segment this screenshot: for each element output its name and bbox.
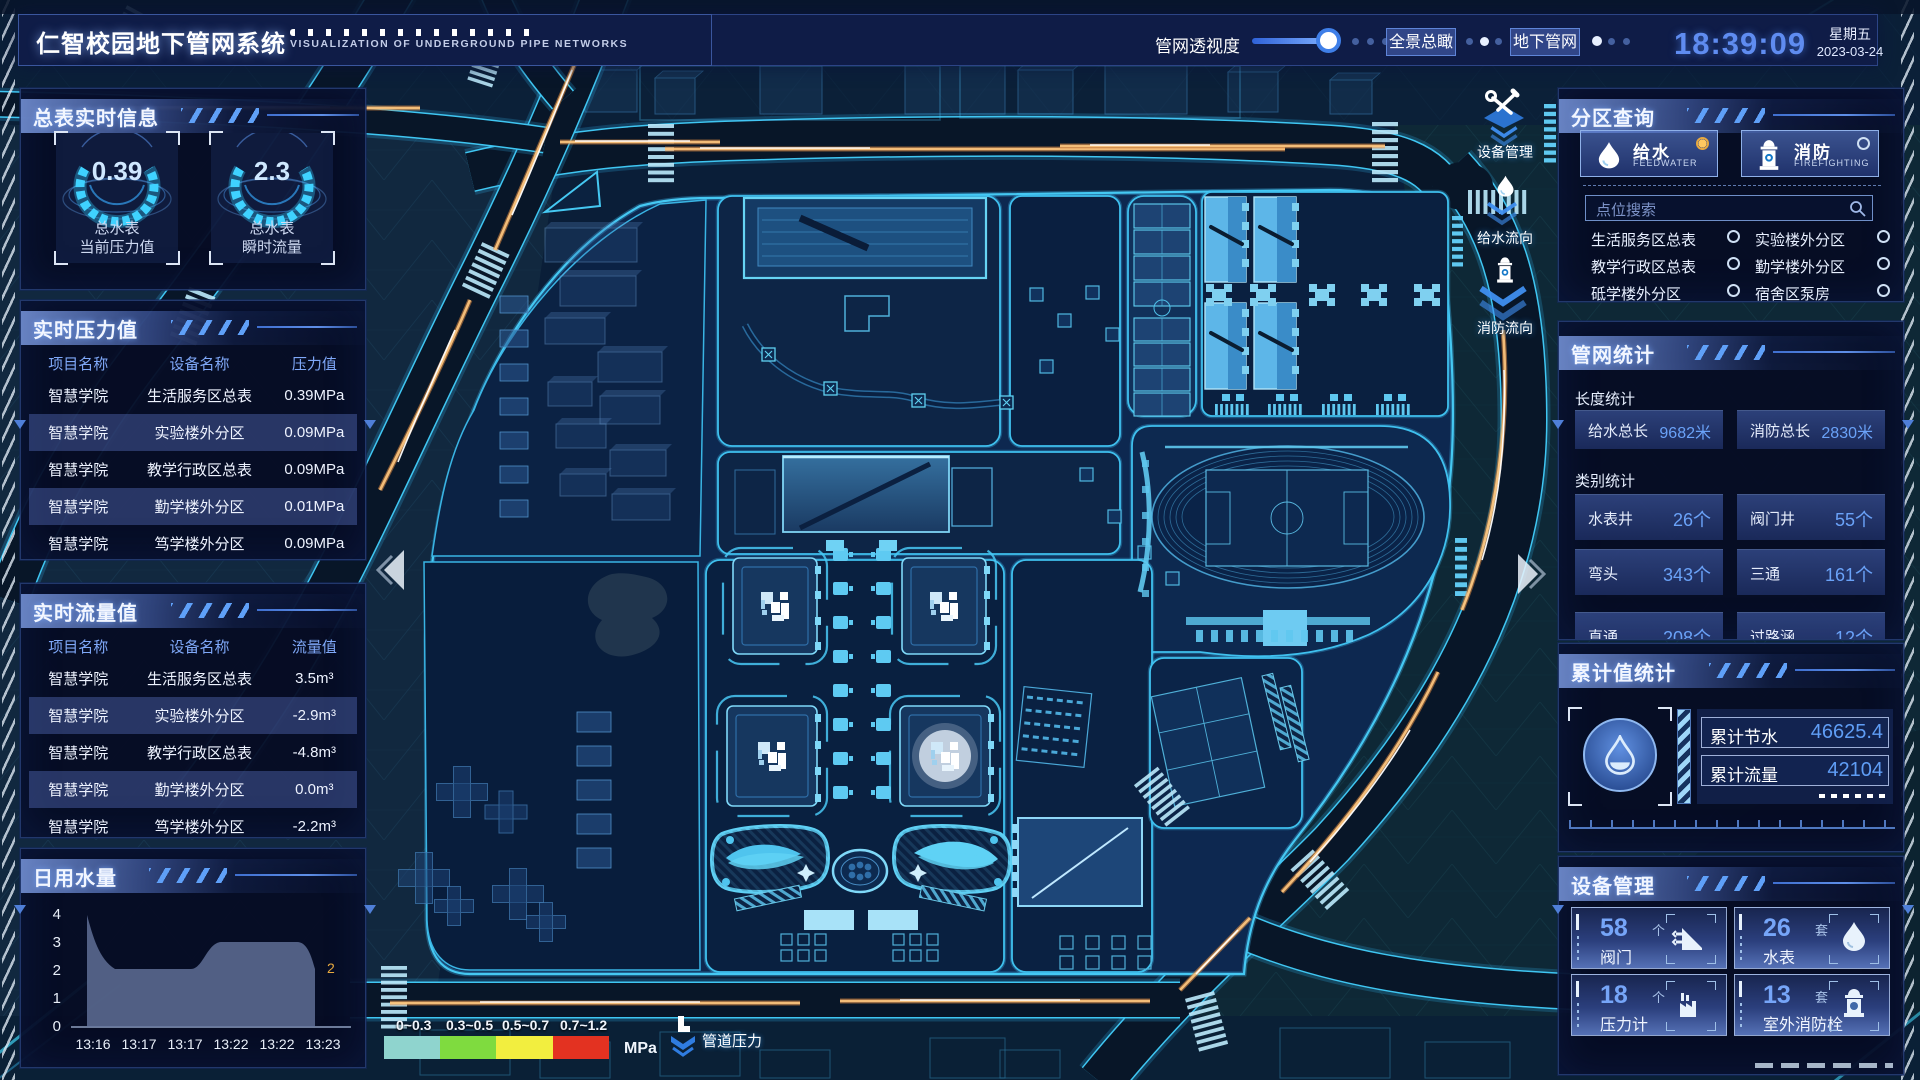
svg-text:13:22: 13:22 [213, 1036, 248, 1052]
svg-text:3: 3 [53, 934, 61, 951]
svg-text:2.3: 2.3 [254, 156, 290, 186]
svg-text:0: 0 [53, 1018, 61, 1035]
svg-text:13:17: 13:17 [121, 1036, 156, 1052]
svg-text:0.39: 0.39 [92, 156, 143, 186]
svg-text:13:17: 13:17 [167, 1036, 202, 1052]
svg-text:2: 2 [327, 960, 335, 976]
svg-text:13:23: 13:23 [305, 1036, 340, 1052]
svg-text:2: 2 [53, 962, 61, 979]
svg-text:13:22: 13:22 [259, 1036, 294, 1052]
svg-text:1: 1 [53, 990, 61, 1007]
svg-text:13:16: 13:16 [75, 1036, 110, 1052]
svg-text:4: 4 [53, 906, 61, 923]
